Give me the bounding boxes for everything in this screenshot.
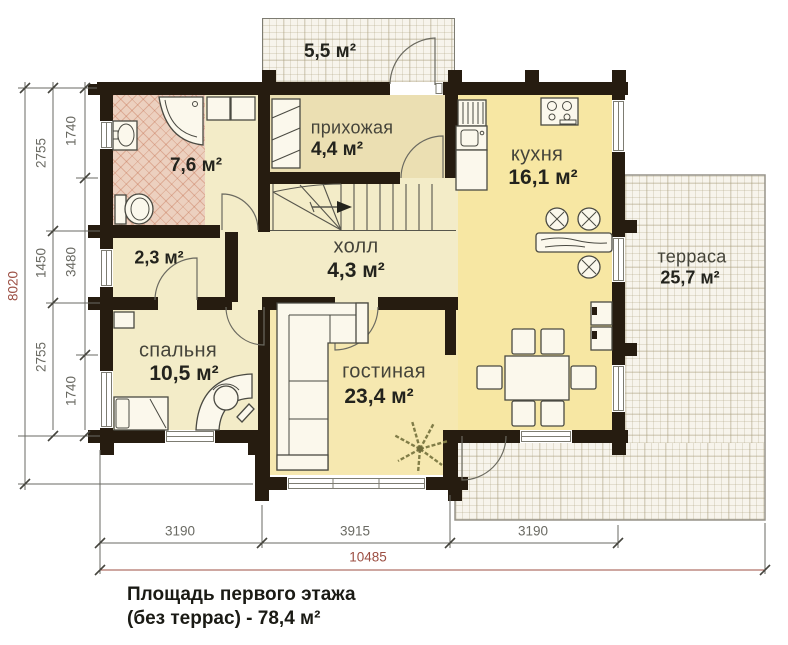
caption-line2: (без террас) - 78,4 м²: [127, 608, 320, 630]
kitchen-sink-icon: [456, 126, 487, 150]
floor-plan: 5,5 м² 7,6 м² прихожая 4,4 м² кухня 16,1…: [0, 0, 788, 645]
kitchen-area-label: 16,1 м²: [508, 166, 577, 190]
living-area-label: 23,4 м²: [344, 385, 413, 409]
counter-icon: [456, 150, 487, 190]
bath-cabinet-icon: [207, 97, 255, 120]
fridge-icon: [458, 100, 486, 126]
bedroom-area-label: 10,5 м²: [149, 362, 218, 386]
toilet-icon: [115, 194, 153, 224]
dresser-icon: [114, 312, 134, 328]
dim-left-inner-0: 2755: [34, 138, 49, 168]
bedroom-name-label: спальня: [139, 340, 217, 363]
dim-bottom-segment-2: 3190: [518, 524, 548, 539]
dim-bottom-overall: 10485: [349, 550, 387, 565]
sink-icon: [113, 121, 137, 150]
living-name-label: гостиная: [342, 361, 426, 384]
dim-bottom-segment-1: 3915: [340, 524, 370, 539]
plan-drawing: [0, 0, 788, 645]
dim-left-overall: 8020: [6, 271, 21, 301]
bar-counter-icon: [536, 233, 612, 252]
dim-left-inner-1: 1450: [34, 248, 49, 278]
hall-area-label: 4,3 м²: [327, 259, 385, 283]
kitchen-name-label: кухня: [511, 144, 563, 167]
porch-area-label: 5,5 м²: [304, 41, 356, 63]
cabinet-icon: [591, 302, 612, 350]
hallway-name-label: прихожая: [311, 118, 394, 139]
dim-left-innermost-0: 1740: [64, 116, 79, 146]
terrace-name-label: терраса: [657, 247, 726, 268]
wardrobe-icon: [272, 99, 300, 168]
caption-line1: Площадь первого этажа: [127, 584, 356, 606]
dim-left-innermost-2: 1740: [64, 376, 79, 406]
shower-icon: [159, 97, 203, 145]
dim-left-innermost-1: 3480: [64, 247, 79, 277]
dim-bottom-segment-0: 3190: [165, 524, 195, 539]
closet-area-label: 2,3 м²: [134, 248, 183, 269]
hall-name-label: холл: [334, 236, 379, 259]
plant-icon: [394, 421, 448, 473]
bed-icon: [114, 397, 168, 430]
stove-icon: [541, 98, 578, 125]
terrace-area-label: 25,7 м²: [660, 268, 719, 289]
dining-table-icon: [505, 356, 569, 400]
porch-outline: [263, 19, 455, 83]
dim-left-inner-2: 2755: [34, 342, 49, 372]
hallway-area-label: 4,4 м²: [311, 139, 363, 161]
bathroom-area-label: 7,6 м²: [170, 155, 222, 177]
stairs: [270, 184, 456, 231]
